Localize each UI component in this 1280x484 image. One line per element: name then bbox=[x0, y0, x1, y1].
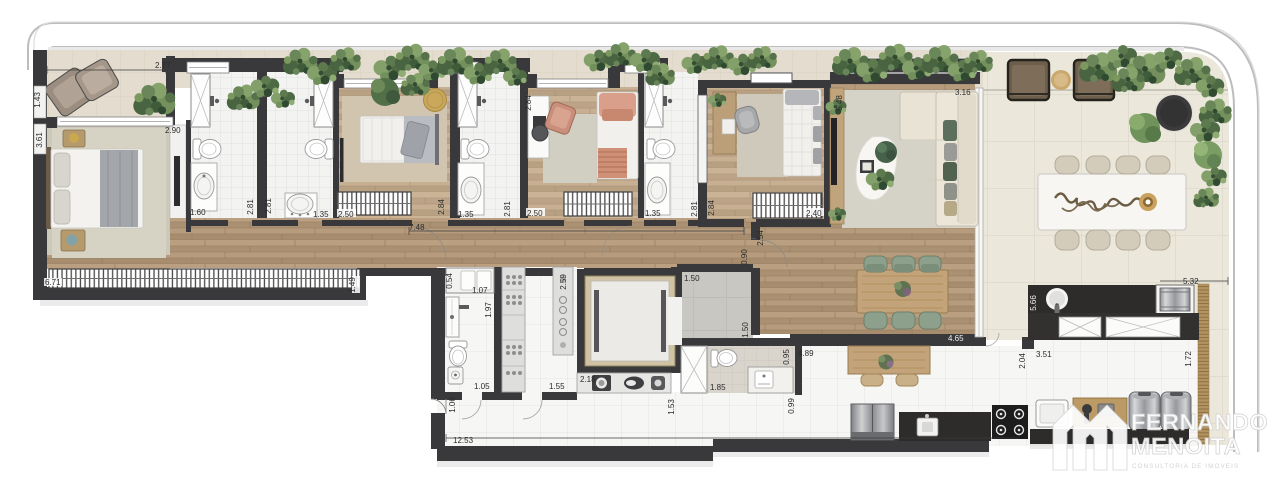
svg-text:2.81: 2.81 bbox=[264, 198, 273, 214]
svg-text:2.84: 2.84 bbox=[707, 200, 716, 216]
svg-text:2.84: 2.84 bbox=[524, 95, 533, 111]
svg-text:2.40: 2.40 bbox=[806, 209, 822, 218]
svg-text:1.35: 1.35 bbox=[645, 209, 661, 218]
svg-text:3.51: 3.51 bbox=[1036, 350, 1052, 359]
svg-text:2.54: 2.54 bbox=[756, 230, 765, 246]
svg-text:1.05: 1.05 bbox=[474, 382, 490, 391]
svg-text:2.77: 2.77 bbox=[155, 61, 171, 70]
svg-text:2.81: 2.81 bbox=[690, 201, 699, 217]
svg-text:1.72: 1.72 bbox=[1184, 351, 1193, 367]
svg-text:2.50: 2.50 bbox=[338, 210, 354, 219]
svg-text:1.06: 1.06 bbox=[448, 397, 457, 413]
svg-text:1.49: 1.49 bbox=[348, 277, 357, 293]
svg-text:CONSULTORIA DE IMOVEIS: CONSULTORIA DE IMOVEIS bbox=[1132, 463, 1239, 470]
svg-text:1.07: 1.07 bbox=[472, 286, 488, 295]
svg-text:1.35: 1.35 bbox=[313, 210, 329, 219]
svg-text:2.59: 2.59 bbox=[559, 274, 568, 290]
svg-text:1.85: 1.85 bbox=[710, 383, 726, 392]
svg-text:1.53: 1.53 bbox=[667, 399, 676, 415]
svg-text:5.66: 5.66 bbox=[1029, 295, 1038, 311]
svg-text:7.48: 7.48 bbox=[409, 223, 425, 232]
svg-text:2.81: 2.81 bbox=[246, 199, 255, 215]
svg-text:2.50: 2.50 bbox=[527, 209, 543, 218]
svg-text:1.35: 1.35 bbox=[458, 210, 474, 219]
svg-text:MENOITA: MENOITA bbox=[1131, 433, 1241, 459]
svg-text:1.43: 1.43 bbox=[33, 92, 42, 108]
svg-text:6.71: 6.71 bbox=[45, 278, 61, 287]
svg-text:3.16: 3.16 bbox=[955, 88, 971, 97]
svg-text:1.55: 1.55 bbox=[549, 382, 565, 391]
svg-text:5.48: 5.48 bbox=[835, 95, 844, 111]
svg-text:0.99: 0.99 bbox=[787, 398, 796, 414]
svg-text:4.65: 4.65 bbox=[948, 334, 964, 343]
svg-text:4.89: 4.89 bbox=[798, 349, 814, 358]
svg-text:2.90: 2.90 bbox=[165, 126, 181, 135]
svg-text:1.97: 1.97 bbox=[484, 302, 493, 318]
svg-text:5.32: 5.32 bbox=[1183, 277, 1199, 286]
svg-text:2.18: 2.18 bbox=[580, 375, 596, 384]
svg-text:1.50: 1.50 bbox=[684, 274, 700, 283]
svg-text:0.90: 0.90 bbox=[740, 249, 749, 265]
svg-text:FERNANDO: FERNANDO bbox=[1131, 409, 1268, 435]
svg-text:3.61: 3.61 bbox=[35, 132, 44, 148]
svg-text:2.04: 2.04 bbox=[1018, 353, 1027, 369]
svg-text:0.54: 0.54 bbox=[445, 273, 454, 289]
svg-text:2.81: 2.81 bbox=[503, 201, 512, 217]
svg-text:2.84: 2.84 bbox=[437, 199, 446, 215]
svg-text:0.95: 0.95 bbox=[782, 349, 791, 365]
svg-text:1.60: 1.60 bbox=[190, 208, 206, 217]
svg-text:12.53: 12.53 bbox=[453, 436, 474, 445]
svg-text:1.50: 1.50 bbox=[741, 322, 750, 338]
